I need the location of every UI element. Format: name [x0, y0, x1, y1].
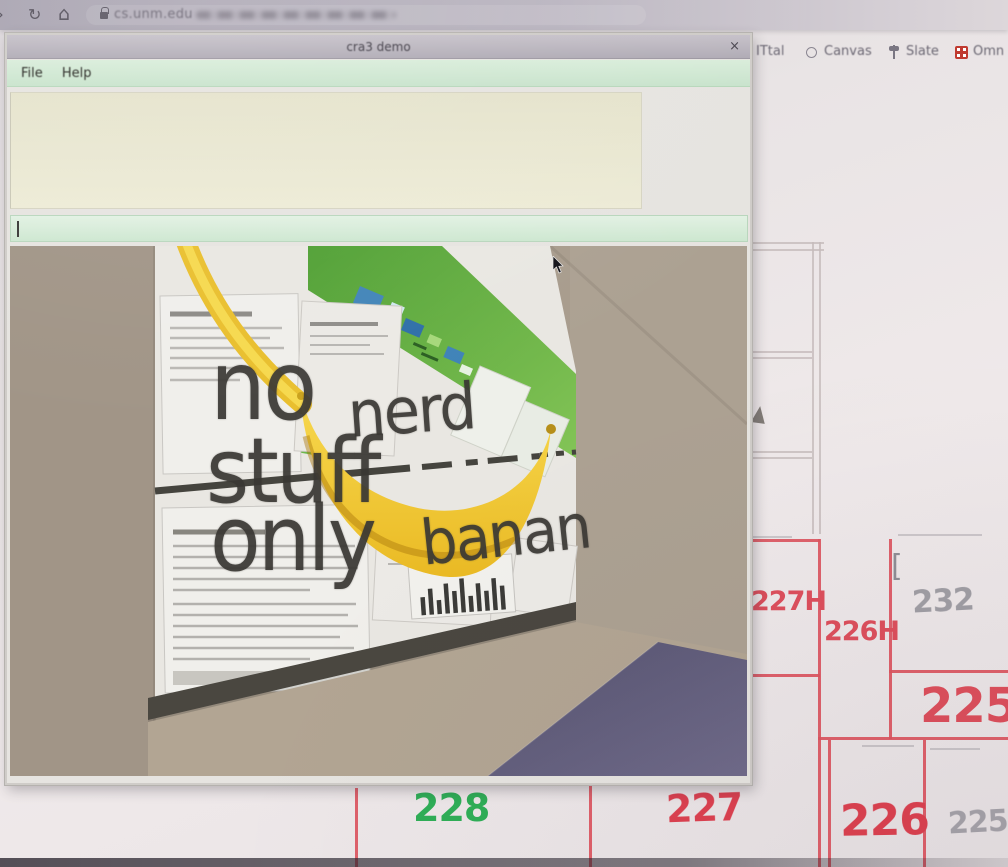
slate-icon	[888, 45, 900, 59]
menu-bar: File Help	[7, 60, 750, 87]
app-window: cra3 demo × File Help	[5, 33, 752, 785]
plan-wall	[748, 674, 820, 677]
back-icon[interactable]: ›	[0, 0, 4, 30]
browser-toolbar: › ↻ ⌂ cs.unm.edu	[0, 0, 1008, 30]
room-label-226h: 226H	[824, 616, 899, 647]
bookmark-ittal[interactable]: ITtal	[756, 44, 784, 59]
room-label-225-small: 225	[947, 803, 1008, 841]
text-caret	[17, 221, 19, 237]
plan-line	[812, 242, 814, 534]
window-title: cra3 demo	[7, 35, 750, 59]
home-icon[interactable]: ⌂	[58, 0, 70, 29]
url-path-blurred	[196, 11, 396, 19]
plan-wall	[589, 786, 592, 867]
left-wall	[10, 246, 155, 776]
room-label-232: 232	[911, 581, 975, 620]
omni-icon	[955, 46, 968, 59]
bookmark-slate[interactable]: Slate	[906, 44, 939, 59]
plan-wall	[889, 670, 1008, 673]
room-label-228: 228	[413, 786, 489, 830]
plan-mark	[751, 405, 767, 424]
plan-fineprint	[862, 745, 914, 747]
output-area[interactable]	[10, 92, 642, 209]
lock-icon	[100, 12, 108, 19]
plan-wall	[828, 740, 831, 867]
circle-icon	[806, 47, 817, 58]
mouse-cursor	[552, 256, 564, 274]
bookmark-omn[interactable]: Omn	[973, 44, 1004, 59]
close-icon[interactable]: ×	[729, 35, 740, 59]
plan-wall	[355, 788, 358, 867]
room-label-225: 225	[920, 678, 1008, 734]
window-titlebar[interactable]: cra3 demo ×	[7, 35, 750, 59]
plan-fineprint	[752, 536, 792, 538]
room-label-227: 227	[665, 785, 743, 832]
plan-wall	[818, 737, 1008, 740]
plan-line	[819, 242, 821, 534]
bookmark-canvas[interactable]: Canvas	[824, 44, 872, 59]
plan-line	[748, 357, 812, 359]
plan-line	[748, 457, 812, 459]
plan-fineprint	[930, 748, 980, 750]
screen: 227H 226H 232 [ 225 228 227 226 225 › ↻ …	[0, 0, 1008, 867]
room-label-227h: 227H	[751, 586, 826, 617]
menu-help[interactable]: Help	[62, 66, 92, 81]
menu-file[interactable]: File	[21, 66, 43, 81]
plan-line	[748, 351, 812, 353]
plan-wall	[748, 539, 820, 542]
render-viewport[interactable]: no nerd stuff only banan	[10, 246, 747, 776]
room-label-226: 226	[840, 794, 930, 847]
overlay-word-banan: banan	[418, 495, 593, 574]
plan-bracket: [	[891, 549, 903, 584]
plan-fineprint	[898, 534, 982, 536]
reload-icon[interactable]: ↻	[28, 0, 41, 30]
photo-edge	[0, 858, 1008, 867]
url-host: cs.unm.edu	[114, 7, 193, 22]
command-input[interactable]	[10, 215, 748, 242]
plan-line	[748, 451, 812, 453]
overlay-word-only: only	[210, 495, 374, 585]
